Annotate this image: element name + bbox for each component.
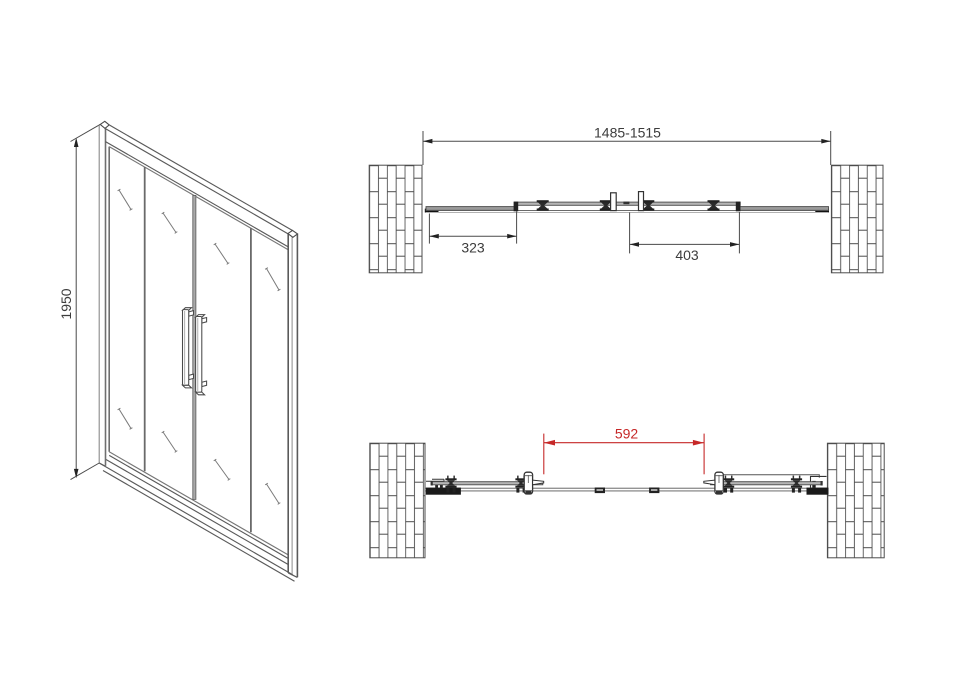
svg-text:1485-1515: 1485-1515 <box>594 125 661 141</box>
svg-text:1950: 1950 <box>58 288 74 319</box>
svg-text:323: 323 <box>461 239 485 255</box>
svg-text:403: 403 <box>675 247 699 263</box>
svg-text:592: 592 <box>615 425 639 441</box>
